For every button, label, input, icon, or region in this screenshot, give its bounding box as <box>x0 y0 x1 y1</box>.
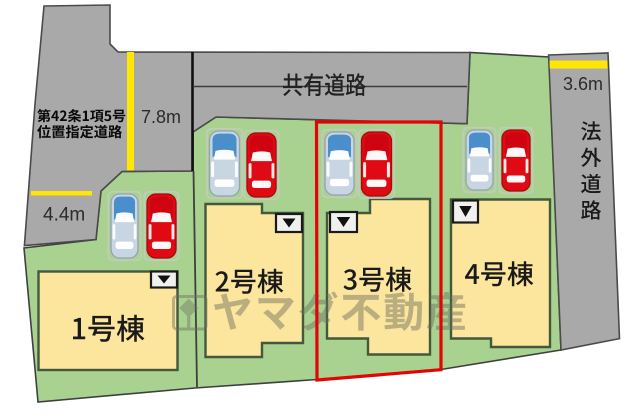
svg-text:7.8m: 7.8m <box>141 107 181 127</box>
svg-text:4.4m: 4.4m <box>43 205 85 226</box>
svg-text:3.6m: 3.6m <box>563 74 603 94</box>
